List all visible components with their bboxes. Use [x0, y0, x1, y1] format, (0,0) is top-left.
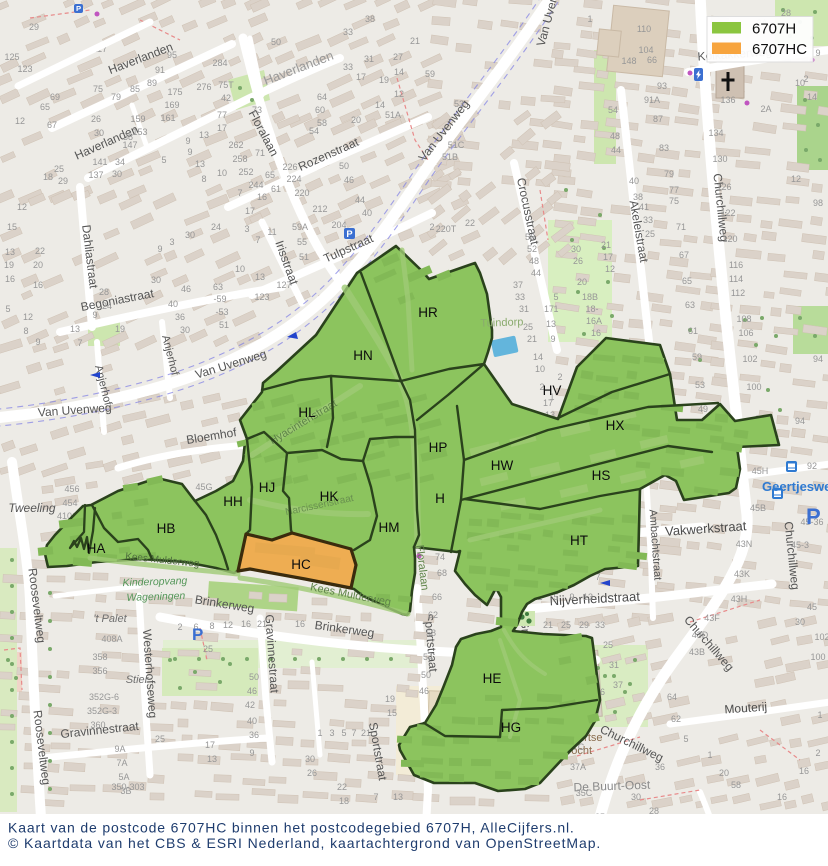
svg-text:29: 29 — [29, 22, 39, 32]
svg-text:252: 252 — [238, 167, 253, 177]
svg-text:13: 13 — [195, 159, 205, 169]
svg-text:67: 67 — [47, 120, 57, 130]
svg-text:13: 13 — [199, 130, 209, 140]
svg-text:2: 2 — [557, 372, 562, 382]
svg-text:17: 17 — [245, 206, 255, 216]
svg-text:100: 100 — [810, 652, 825, 662]
svg-text:30: 30 — [180, 325, 190, 335]
svg-text:408A: 408A — [101, 634, 122, 644]
svg-text:11: 11 — [267, 227, 276, 237]
svg-text:51C: 51C — [448, 140, 465, 150]
svg-text:141: 141 — [92, 157, 107, 167]
svg-text:24: 24 — [211, 222, 221, 232]
svg-text:123: 123 — [254, 292, 269, 302]
svg-text:94: 94 — [795, 416, 805, 426]
svg-text:14: 14 — [375, 100, 385, 110]
svg-text:33: 33 — [595, 620, 605, 630]
svg-text:35C: 35C — [576, 788, 593, 798]
svg-text:5A: 5A — [118, 772, 129, 782]
svg-text:63: 63 — [685, 300, 695, 310]
svg-text:17: 17 — [356, 72, 366, 82]
svg-text:98: 98 — [813, 198, 823, 208]
svg-text:28: 28 — [99, 287, 109, 297]
svg-text:13: 13 — [70, 324, 80, 334]
svg-text:92: 92 — [807, 461, 817, 471]
svg-text:85: 85 — [130, 84, 140, 94]
svg-text:3: 3 — [169, 237, 174, 247]
svg-text:71: 71 — [676, 222, 686, 232]
svg-text:226: 226 — [282, 162, 297, 172]
svg-text:87: 87 — [653, 114, 663, 124]
svg-text:56: 56 — [525, 232, 535, 242]
svg-text:7: 7 — [77, 338, 82, 348]
svg-text:12: 12 — [223, 620, 233, 630]
svg-text:112: 112 — [731, 288, 745, 298]
svg-text:79: 79 — [111, 92, 121, 102]
svg-text:20: 20 — [33, 260, 43, 270]
svg-text:59: 59 — [425, 69, 435, 79]
svg-text:46: 46 — [247, 686, 257, 696]
svg-text:HP: HP — [429, 440, 448, 455]
svg-text:148: 148 — [621, 56, 636, 66]
svg-text:60: 60 — [315, 105, 325, 115]
svg-text:75: 75 — [93, 84, 103, 94]
svg-text:18-: 18- — [585, 304, 598, 314]
svg-text:91A: 91A — [644, 95, 660, 105]
svg-text:169: 169 — [164, 100, 179, 110]
svg-text:21: 21 — [257, 619, 267, 629]
svg-text:102: 102 — [742, 354, 757, 364]
svg-text:53: 53 — [695, 380, 705, 390]
svg-text:83: 83 — [659, 143, 669, 153]
svg-text:43F: 43F — [704, 613, 720, 623]
svg-text:P: P — [806, 504, 821, 529]
svg-text:25: 25 — [203, 644, 213, 654]
svg-text:8: 8 — [209, 621, 214, 631]
svg-text:19: 19 — [379, 75, 389, 85]
svg-text:3: 3 — [244, 224, 249, 234]
svg-text:Tweeling: Tweeling — [8, 501, 55, 515]
svg-text:63: 63 — [213, 282, 223, 292]
svg-text:16: 16 — [257, 192, 267, 202]
svg-text:284: 284 — [212, 58, 227, 68]
svg-text:36: 36 — [249, 730, 259, 740]
svg-text:62: 62 — [671, 714, 681, 724]
svg-text:58: 58 — [731, 780, 741, 790]
svg-text:220T: 220T — [436, 224, 457, 234]
svg-text:25: 25 — [603, 640, 613, 650]
svg-text:153: 153 — [132, 127, 147, 137]
svg-text:30: 30 — [112, 169, 122, 179]
svg-text:77: 77 — [669, 185, 679, 195]
svg-text:45B: 45B — [750, 503, 766, 513]
svg-text:16: 16 — [799, 766, 809, 776]
svg-text:HW: HW — [491, 458, 514, 473]
svg-text:33: 33 — [343, 62, 353, 72]
svg-text:5: 5 — [5, 304, 10, 314]
svg-text:HE: HE — [483, 671, 502, 686]
svg-text:31: 31 — [519, 304, 529, 314]
svg-text:13: 13 — [583, 592, 593, 602]
svg-text:356: 356 — [92, 666, 107, 676]
svg-text:110: 110 — [637, 24, 651, 34]
svg-text:37: 37 — [613, 680, 623, 690]
svg-text:10: 10 — [217, 168, 227, 178]
svg-text:12: 12 — [605, 264, 615, 274]
svg-text:59A: 59A — [292, 222, 308, 232]
svg-text:37A: 37A — [570, 762, 586, 772]
svg-text:43H: 43H — [731, 594, 748, 604]
svg-text:244: 244 — [248, 180, 263, 190]
svg-text:50: 50 — [339, 161, 349, 171]
svg-text:H: H — [435, 491, 445, 506]
svg-text:18: 18 — [43, 172, 53, 182]
svg-text:31: 31 — [609, 660, 619, 670]
svg-text:54: 54 — [608, 105, 618, 115]
svg-text:Stier: Stier — [126, 674, 150, 686]
svg-text:21: 21 — [361, 728, 371, 738]
svg-text:352G-6: 352G-6 — [89, 692, 119, 702]
svg-text:42: 42 — [245, 700, 255, 710]
svg-text:104: 104 — [638, 45, 653, 55]
svg-text:67: 67 — [679, 250, 689, 260]
svg-text:45-3: 45-3 — [791, 540, 809, 550]
svg-text:75T: 75T — [218, 80, 234, 90]
svg-text:16A: 16A — [586, 316, 602, 326]
svg-text:Kaart van de postcode 6707HC b: Kaart van de postcode 6707HC binnen het … — [8, 820, 575, 836]
svg-text:21: 21 — [410, 36, 420, 46]
svg-text:46: 46 — [181, 284, 191, 294]
svg-text:95: 95 — [167, 50, 177, 60]
svg-text:25: 25 — [155, 734, 165, 744]
svg-text:106: 106 — [738, 328, 753, 338]
svg-text:'t Palet: 't Palet — [93, 613, 127, 625]
svg-text:13: 13 — [393, 792, 403, 802]
svg-text:8: 8 — [201, 174, 206, 184]
svg-text:16: 16 — [33, 280, 43, 290]
svg-text:29: 29 — [579, 620, 589, 630]
svg-text:5: 5 — [683, 734, 688, 744]
svg-text:9: 9 — [157, 244, 162, 254]
svg-text:3: 3 — [329, 728, 334, 738]
svg-text:9: 9 — [569, 592, 574, 602]
svg-text:66: 66 — [647, 55, 657, 65]
svg-text:14: 14 — [394, 67, 404, 77]
svg-text:161: 161 — [160, 113, 175, 123]
svg-text:7: 7 — [373, 792, 378, 802]
svg-text:17: 17 — [603, 252, 613, 262]
svg-text:12: 12 — [394, 89, 404, 99]
svg-text:19: 19 — [385, 694, 395, 704]
svg-text:24: 24 — [102, 301, 112, 311]
svg-text:352G-3: 352G-3 — [87, 706, 117, 716]
svg-text:P: P — [346, 229, 352, 239]
svg-text:77: 77 — [217, 110, 227, 120]
svg-text:9: 9 — [550, 334, 555, 344]
svg-text:25: 25 — [645, 229, 655, 239]
svg-text:38: 38 — [633, 192, 643, 202]
svg-text:48: 48 — [610, 131, 620, 141]
svg-text:8: 8 — [23, 326, 28, 336]
svg-text:29: 29 — [58, 176, 68, 186]
svg-text:22: 22 — [337, 782, 347, 792]
svg-text:5: 5 — [161, 155, 166, 165]
svg-text:22: 22 — [35, 246, 45, 256]
svg-text:40: 40 — [362, 208, 372, 218]
svg-text:49: 49 — [698, 404, 708, 414]
svg-text:224: 224 — [286, 174, 301, 184]
svg-text:9: 9 — [187, 147, 192, 157]
svg-text:HT: HT — [570, 533, 588, 548]
svg-text:9: 9 — [92, 310, 97, 320]
svg-text:64: 64 — [317, 92, 327, 102]
svg-text:33: 33 — [343, 27, 353, 37]
svg-text:9: 9 — [185, 136, 190, 146]
svg-text:75: 75 — [669, 196, 679, 206]
svg-text:61: 61 — [271, 184, 281, 194]
svg-text:50: 50 — [249, 672, 259, 682]
svg-text:© Kaartdata van het CBS & ESRI: © Kaartdata van het CBS & ESRI Nederland… — [8, 835, 601, 851]
svg-text:HB: HB — [157, 521, 176, 536]
svg-text:12: 12 — [791, 174, 801, 184]
svg-text:-59: -59 — [213, 294, 226, 304]
svg-text:44: 44 — [611, 145, 621, 155]
svg-text:54: 54 — [423, 652, 433, 662]
svg-text:51B: 51B — [442, 152, 458, 162]
svg-text:30: 30 — [151, 275, 161, 285]
svg-text:25: 25 — [561, 620, 571, 630]
svg-text:456: 456 — [64, 484, 79, 494]
svg-text:1: 1 — [817, 710, 822, 720]
svg-text:43N: 43N — [736, 539, 753, 549]
svg-text:50: 50 — [271, 37, 281, 47]
svg-text:220: 220 — [294, 188, 309, 198]
svg-text:53: 53 — [454, 99, 464, 109]
svg-text:HJ: HJ — [259, 480, 276, 495]
svg-text:P: P — [192, 625, 203, 644]
svg-text:43D: 43D — [692, 630, 709, 640]
svg-text:30: 30 — [185, 230, 195, 240]
svg-text:89: 89 — [147, 78, 157, 88]
svg-text:93: 93 — [657, 81, 667, 91]
svg-text:26: 26 — [91, 114, 101, 124]
svg-text:41: 41 — [639, 202, 649, 212]
svg-text:258: 258 — [232, 154, 247, 164]
svg-text:68: 68 — [437, 568, 447, 578]
svg-text:262: 262 — [228, 140, 243, 150]
svg-text:44: 44 — [531, 268, 541, 278]
svg-text:17: 17 — [205, 740, 215, 750]
svg-text:9: 9 — [249, 748, 254, 758]
svg-text:74: 74 — [435, 552, 445, 562]
svg-text:42: 42 — [221, 93, 231, 103]
svg-text:2: 2 — [803, 74, 808, 84]
svg-text:HS: HS — [592, 468, 611, 483]
svg-text:13: 13 — [546, 319, 556, 329]
svg-text:65: 65 — [265, 170, 275, 180]
svg-text:2A: 2A — [760, 104, 771, 114]
svg-text:30: 30 — [94, 128, 104, 138]
svg-text:126: 126 — [716, 182, 731, 192]
svg-text:69: 69 — [50, 92, 60, 102]
svg-text:HN: HN — [353, 348, 373, 363]
svg-text:20: 20 — [577, 277, 587, 287]
svg-text:16: 16 — [591, 328, 601, 338]
svg-text:46: 46 — [344, 175, 354, 185]
svg-text:13: 13 — [255, 272, 265, 282]
svg-text:43B: 43B — [689, 647, 705, 657]
svg-text:21: 21 — [527, 334, 537, 344]
svg-text:66: 66 — [432, 592, 442, 602]
svg-text:16: 16 — [295, 619, 305, 629]
svg-text:HL: HL — [298, 405, 316, 420]
svg-text:15: 15 — [7, 222, 17, 232]
svg-text:2: 2 — [815, 748, 820, 758]
svg-text:55: 55 — [297, 237, 307, 247]
svg-text:16: 16 — [5, 274, 15, 284]
svg-text:43K: 43K — [734, 569, 750, 579]
svg-text:17: 17 — [217, 123, 227, 133]
svg-text:HG: HG — [501, 720, 521, 735]
svg-text:36: 36 — [655, 762, 665, 772]
svg-text:50: 50 — [421, 670, 431, 680]
svg-text:276: 276 — [196, 82, 211, 92]
svg-text:6707H: 6707H — [752, 21, 796, 38]
svg-text:26: 26 — [307, 768, 317, 778]
svg-text:360: 360 — [90, 720, 105, 730]
svg-text:Wageningen: Wageningen — [126, 590, 185, 604]
svg-text:454: 454 — [62, 498, 77, 508]
svg-text:7: 7 — [237, 188, 242, 198]
svg-text:38: 38 — [365, 14, 375, 24]
svg-text:25: 25 — [54, 164, 64, 174]
svg-text:51A: 51A — [385, 110, 401, 120]
svg-text:65: 65 — [682, 276, 692, 286]
svg-text:114: 114 — [729, 274, 743, 284]
svg-text:12: 12 — [15, 116, 25, 126]
svg-text:27: 27 — [393, 52, 403, 62]
svg-text:HA: HA — [87, 541, 106, 556]
svg-text:127: 127 — [276, 280, 291, 290]
svg-text:73: 73 — [252, 105, 262, 115]
svg-text:6707HC: 6707HC — [752, 41, 807, 58]
svg-text:15: 15 — [387, 708, 397, 718]
svg-text:1: 1 — [553, 304, 558, 314]
svg-text:40: 40 — [629, 176, 639, 186]
svg-text:108: 108 — [736, 314, 751, 324]
svg-text:1: 1 — [317, 728, 322, 738]
svg-text:65: 65 — [40, 102, 50, 112]
svg-text:HM: HM — [379, 520, 400, 535]
svg-text:14: 14 — [533, 352, 543, 362]
svg-text:51: 51 — [299, 252, 309, 262]
svg-text:123: 123 — [17, 64, 32, 74]
svg-text:59: 59 — [692, 352, 702, 362]
svg-text:79: 79 — [664, 169, 674, 179]
svg-text:212: 212 — [312, 204, 327, 214]
svg-text:19: 19 — [115, 324, 125, 334]
svg-text:40: 40 — [168, 299, 178, 309]
svg-text:125: 125 — [4, 52, 19, 62]
svg-text:10: 10 — [535, 364, 545, 374]
svg-text:16: 16 — [241, 619, 251, 629]
svg-text:Geertjesweg: Geertjesweg — [762, 479, 828, 494]
svg-text:9: 9 — [815, 48, 820, 58]
svg-text:40: 40 — [247, 716, 257, 726]
svg-text:18: 18 — [339, 796, 349, 806]
svg-text:46: 46 — [419, 686, 429, 696]
svg-text:22: 22 — [465, 218, 475, 228]
svg-text:30: 30 — [631, 792, 641, 802]
svg-text:13: 13 — [5, 247, 15, 257]
svg-text:34: 34 — [115, 157, 125, 167]
svg-text:13: 13 — [207, 754, 217, 764]
svg-text:21: 21 — [543, 620, 553, 630]
svg-text:HV: HV — [543, 383, 562, 398]
svg-text:71: 71 — [255, 148, 265, 158]
svg-text:45H: 45H — [752, 466, 769, 476]
svg-text:14: 14 — [807, 92, 817, 102]
svg-text:HK: HK — [320, 489, 339, 504]
svg-text:147: 147 — [122, 140, 137, 150]
svg-text:5: 5 — [553, 292, 558, 302]
svg-text:25: 25 — [523, 322, 533, 332]
svg-text:54: 54 — [309, 126, 319, 136]
svg-text:Kinderopvang: Kinderopvang — [122, 575, 187, 589]
svg-text:52: 52 — [527, 244, 537, 254]
svg-text:20: 20 — [351, 115, 361, 125]
svg-text:62: 62 — [428, 610, 438, 620]
svg-text:33: 33 — [643, 215, 653, 225]
svg-text:2: 2 — [177, 622, 182, 632]
svg-text:58: 58 — [426, 628, 436, 638]
svg-text:122: 122 — [720, 208, 735, 218]
svg-text:120: 120 — [722, 234, 737, 244]
svg-text:30: 30 — [795, 617, 805, 627]
svg-text:45: 45 — [807, 602, 817, 612]
svg-text:HR: HR — [418, 305, 438, 320]
svg-text:12: 12 — [23, 312, 33, 322]
svg-text:31: 31 — [364, 54, 374, 64]
svg-text:-53: -53 — [215, 307, 228, 317]
svg-text:37: 37 — [513, 280, 523, 290]
svg-text:134: 134 — [708, 128, 723, 138]
svg-text:94: 94 — [813, 354, 823, 364]
svg-text:Tuindorp: Tuindorp — [480, 316, 523, 329]
svg-text:P: P — [76, 4, 81, 13]
svg-text:137: 137 — [88, 170, 103, 180]
svg-text:159: 159 — [130, 114, 145, 124]
svg-text:12: 12 — [17, 202, 27, 212]
svg-text:30: 30 — [305, 754, 315, 764]
svg-text:136: 136 — [720, 95, 735, 105]
svg-text:100: 100 — [746, 382, 761, 392]
svg-text:358: 358 — [92, 652, 107, 662]
svg-text:45G: 45G — [195, 482, 212, 492]
svg-text:33: 33 — [515, 292, 525, 302]
svg-text:91: 91 — [155, 65, 165, 75]
svg-text:5: 5 — [341, 728, 346, 738]
svg-text:Mouterij: Mouterij — [724, 700, 768, 717]
svg-text:21: 21 — [601, 240, 611, 250]
svg-text:102: 102 — [814, 632, 828, 642]
svg-text:26: 26 — [573, 256, 583, 266]
svg-text:30: 30 — [571, 244, 581, 254]
svg-text:20: 20 — [719, 768, 729, 778]
svg-text:51: 51 — [219, 320, 229, 330]
svg-text:17: 17 — [544, 304, 554, 314]
svg-text:HX: HX — [606, 418, 625, 433]
